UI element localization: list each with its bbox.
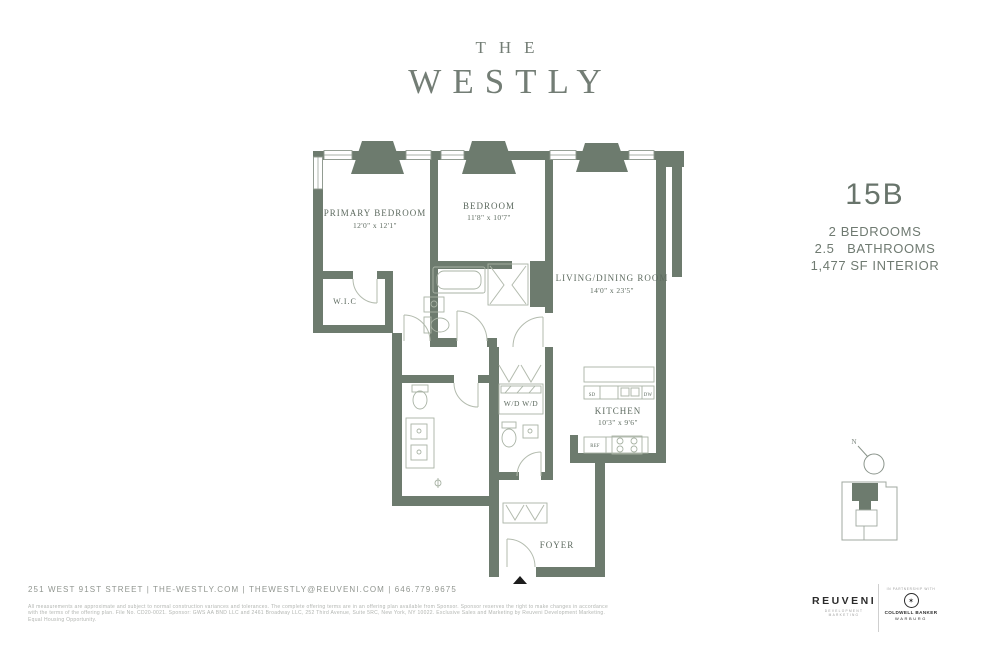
room-label-bedroom: BEDROOM	[463, 201, 515, 211]
room-dims-kitchen: 10'3" x 9'6"	[598, 418, 638, 427]
warburg-name: WARBURG	[884, 616, 938, 621]
reuveni-logo: REUVENI DEVELOPMENT MARKETING	[812, 595, 876, 617]
label-sd: SD	[589, 393, 596, 398]
unit-spec-bedrooms: 2 BEDROOMS	[794, 223, 956, 240]
logo-divider	[878, 584, 879, 632]
partnership-pretext: IN PARTNERSHIP WITH	[884, 587, 938, 591]
unit-spec-bathrooms: 2.5 BATHROOMS	[794, 240, 956, 257]
compass-north-label: N	[851, 438, 856, 446]
room-dims-bedroom: 11'8" x 10'7"	[467, 213, 511, 222]
coldwell-banker-name: COLDWELL BANKER	[884, 610, 938, 615]
room-label-kitchen: KITCHEN	[595, 406, 642, 416]
legal-disclaimer: All measurements are approximate and sub…	[28, 604, 613, 623]
brand-logo: THE WESTLY	[395, 38, 615, 102]
coldwell-banker-logo: IN PARTNERSHIP WITH ✶ COLDWELL BANKER WA…	[884, 587, 938, 621]
label-refrigerator: REF	[590, 444, 600, 449]
doors	[353, 266, 544, 567]
contact-line: 251 WEST 91ST STREET | THE-WESTLY.COM | …	[28, 585, 457, 594]
room-label-foyer: FOYER	[540, 540, 575, 550]
brand-line-the: THE	[395, 38, 615, 58]
brand-line-westly: WESTLY	[395, 62, 615, 102]
building-key-plan	[838, 478, 902, 544]
emblem-star-icon: ✶	[908, 597, 914, 605]
coldwell-banker-emblem-icon: ✶	[904, 593, 919, 608]
room-dims-primary-bedroom: 12'0" x 12'1"	[353, 221, 397, 230]
label-washer-dryer: W/D W/D	[504, 399, 538, 408]
entry-marker	[513, 576, 527, 584]
reuveni-tagline: DEVELOPMENT MARKETING	[812, 609, 876, 617]
floor-plan: PRIMARY BEDROOM 12'0" x 12'1" BEDROOM 11…	[306, 134, 690, 590]
room-dims-living: 14'0" x 23'5"	[590, 286, 634, 295]
unit-number: 15B	[794, 178, 956, 212]
room-label-wic: W.I.C	[333, 297, 357, 306]
elevator-core	[856, 510, 877, 526]
reuveni-wordmark: REUVENI	[812, 595, 876, 607]
unit-info: 15B 2 BEDROOMS 2.5 BATHROOMS 1,477 SF IN…	[794, 178, 956, 274]
label-dishwasher: DW	[644, 393, 653, 398]
room-label-living: LIVING/DINING ROOM	[556, 273, 669, 283]
compass: N	[840, 430, 890, 478]
room-label-primary-bedroom: PRIMARY BEDROOM	[324, 208, 426, 218]
floorplan-flyer: THE WESTLY 15B 2 BEDROOMS 2.5 BATHROOMS …	[0, 0, 1000, 647]
unit-spec-sf: 1,477 SF INTERIOR	[794, 257, 956, 274]
